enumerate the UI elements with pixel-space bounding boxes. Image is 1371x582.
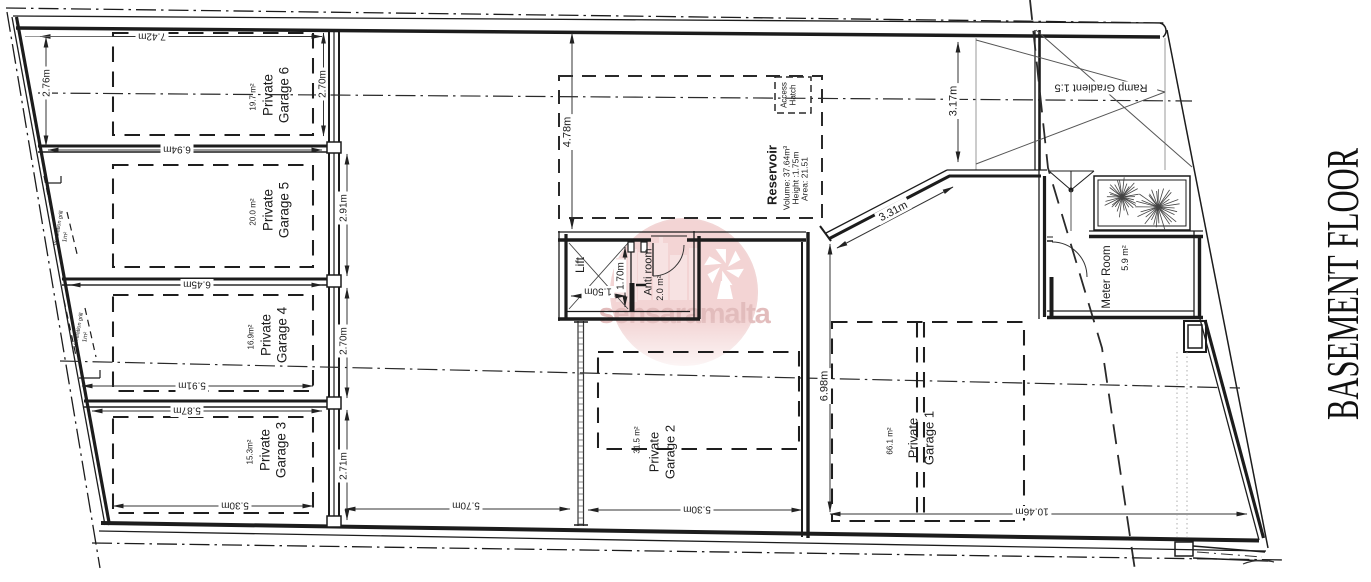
svg-text:5.9 m²: 5.9 m² (1120, 245, 1130, 271)
svg-text:Ramp Gradient 1:5: Ramp Gradient 1:5 (1055, 81, 1148, 93)
svg-text:Private: Private (646, 432, 661, 472)
svg-text:2.0 m²: 2.0 m² (655, 275, 665, 301)
svg-text:15.3m²: 15.3m² (246, 439, 255, 464)
svg-text:3.17m: 3.17m (948, 86, 960, 117)
svg-text:10.46m: 10.46m (1015, 506, 1048, 517)
svg-text:Private: Private (905, 418, 920, 458)
svg-text:5.30m: 5.30m (683, 504, 711, 515)
svg-text:Garage 1: Garage 1 (921, 411, 936, 465)
svg-text:7.42m: 7.42m (138, 31, 166, 42)
svg-text:Hatch: Hatch (789, 85, 798, 106)
svg-text:6.45m: 6.45m (183, 279, 211, 290)
svg-text:Garage 3: Garage 3 (274, 422, 289, 478)
svg-text:BASEMENT FLOOR: BASEMENT FLOOR (1317, 148, 1368, 420)
svg-text:1.70m: 1.70m (615, 262, 626, 290)
svg-text:Meter Room: Meter Room (1101, 245, 1113, 308)
svg-text:5.30m: 5.30m (221, 500, 249, 511)
svg-text:5.91m: 5.91m (178, 380, 206, 391)
svg-text:20.0 m²: 20.0 m² (249, 198, 258, 225)
svg-text:Area: 21.51: Area: 21.51 (799, 157, 809, 201)
svg-text:Reservoir: Reservoir (764, 145, 779, 205)
svg-text:Garage 2: Garage 2 (662, 425, 677, 479)
svg-text:2.91m: 2.91m (338, 194, 349, 222)
svg-text:Private: Private (261, 189, 276, 231)
svg-text:Private: Private (258, 429, 273, 471)
svg-text:31.5 m²: 31.5 m² (633, 426, 642, 453)
svg-text:5.70m: 5.70m (452, 500, 480, 511)
svg-text:2.71m: 2.71m (338, 452, 349, 480)
svg-text:2.70m: 2.70m (338, 327, 349, 355)
svg-text:1.50m: 1.50m (584, 286, 612, 297)
svg-text:Garage 6: Garage 6 (277, 67, 292, 123)
svg-text:Private: Private (259, 314, 274, 356)
svg-text:Private: Private (261, 74, 276, 116)
svg-text:19.7 m²: 19.7 m² (249, 83, 258, 110)
svg-text:4.78m: 4.78m (562, 117, 574, 148)
svg-text:6.98m: 6.98m (819, 371, 831, 402)
svg-text:2.76m: 2.76m (41, 69, 52, 97)
svg-text:Garage 5: Garage 5 (277, 182, 292, 238)
svg-text:Garage 4: Garage 4 (275, 306, 290, 363)
svg-text:6.94m: 6.94m (163, 144, 191, 155)
svg-text:5.87m: 5.87m (173, 405, 201, 416)
svg-text:2.70m: 2.70m (317, 70, 328, 98)
svg-text:16.9m²: 16.9m² (247, 324, 256, 349)
svg-text:66.1 m²: 66.1 m² (886, 427, 895, 454)
svg-text:Lift: Lift (573, 256, 587, 273)
svg-text:Access: Access (780, 82, 789, 108)
